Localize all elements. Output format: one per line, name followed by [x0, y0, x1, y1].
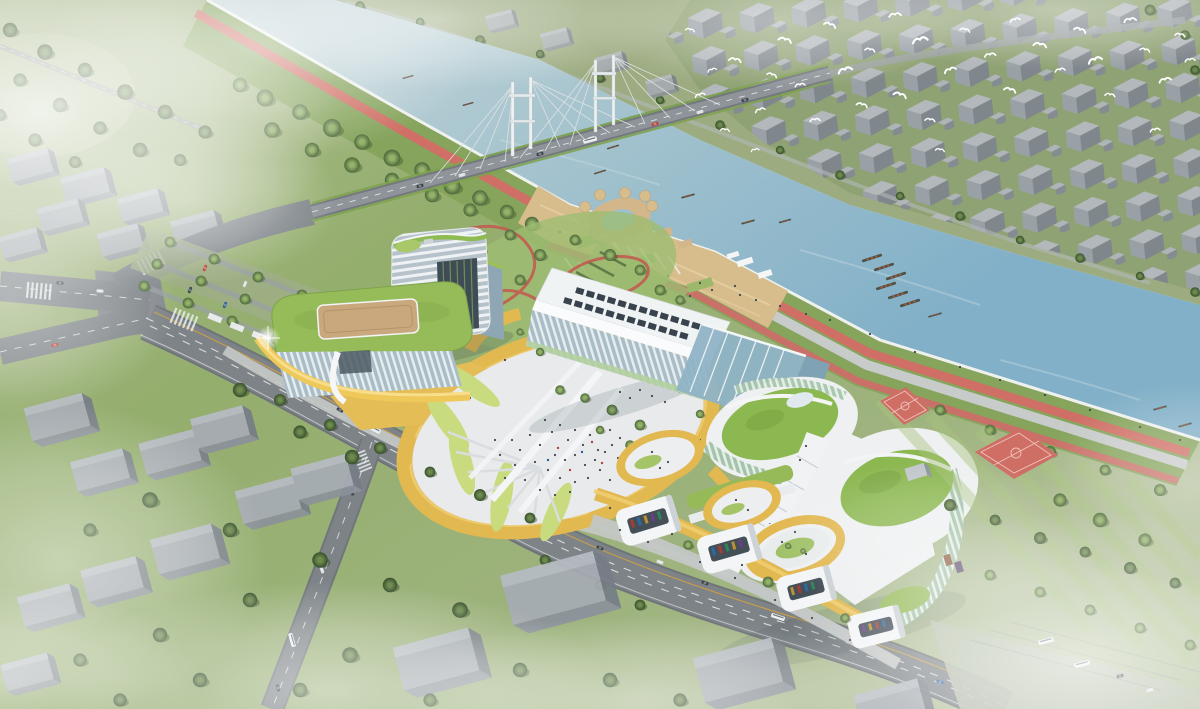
mall-entrance [337, 350, 372, 374]
aerial-rendering: Computer-generated aerial rendering: a c… [0, 0, 1200, 709]
shopping-mall-podium [256, 282, 472, 402]
scene-canvas [0, 0, 1200, 709]
rooftop-terrace [317, 299, 419, 340]
